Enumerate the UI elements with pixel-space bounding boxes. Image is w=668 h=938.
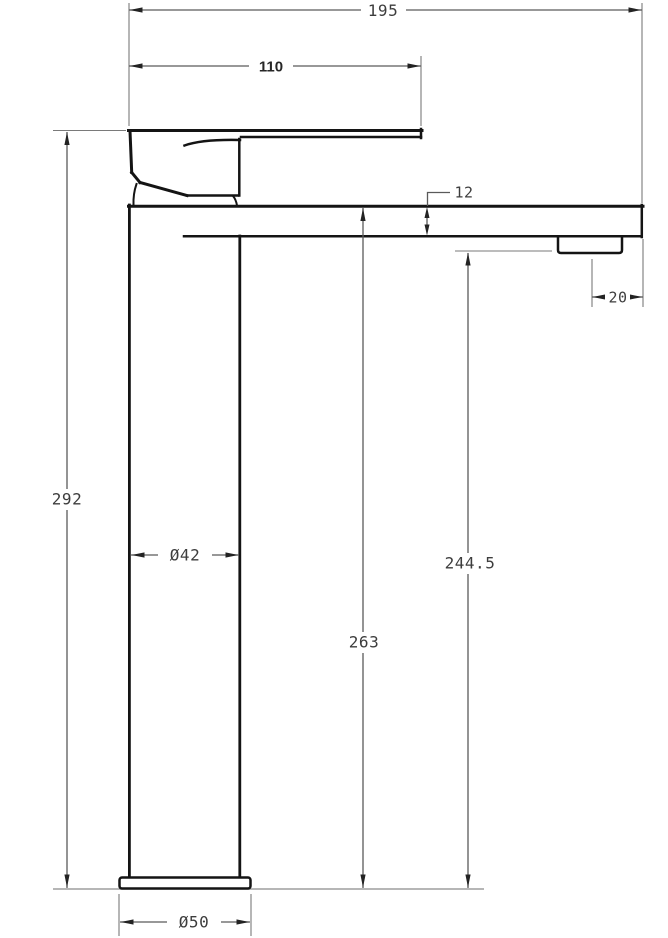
faucet-outline xyxy=(120,129,644,889)
arrowhead-left xyxy=(121,919,134,924)
arrowhead-right xyxy=(237,919,250,924)
drawing-sheet: 195 110 12 20 292 xyxy=(0,0,668,938)
arrowhead-down xyxy=(360,875,365,888)
dim-label-110: 110 xyxy=(259,58,283,75)
dim-label-244-5: 244.5 xyxy=(445,554,496,573)
dimension-handle-lever-length: 110 xyxy=(129,56,421,126)
dimension-spout-thickness: 12 xyxy=(425,184,474,236)
dim-label-20: 20 xyxy=(608,289,627,307)
dimension-overall-projection: 195 xyxy=(129,1,642,203)
neck-right-arc xyxy=(233,196,237,206)
technical-drawing-canvas: 195 110 12 20 292 xyxy=(0,0,668,938)
dimension-body-diameter: Ø42 xyxy=(131,545,239,566)
arrowhead-left xyxy=(132,552,145,557)
base-flange xyxy=(120,878,251,889)
dimension-outlet-to-spout-end: 20 xyxy=(592,239,643,307)
arrowhead-down xyxy=(425,225,430,236)
dimension-outlet-height: 244.5 xyxy=(443,251,552,888)
arrowhead-right xyxy=(629,7,642,12)
aerator-outlet xyxy=(558,237,622,254)
handle-body-top-curve xyxy=(185,140,241,146)
handle-body-left-edge xyxy=(130,131,132,173)
dim-label-292: 292 xyxy=(52,490,82,509)
arrowhead-right xyxy=(630,294,643,299)
arrowhead-left xyxy=(130,63,143,68)
dim-label-12: 12 xyxy=(454,184,473,202)
handle-body-left-jog xyxy=(132,173,140,183)
arrowhead-up xyxy=(425,207,430,218)
neck-left-arc xyxy=(133,184,136,206)
arrowhead-up xyxy=(360,208,365,221)
dim-label-195: 195 xyxy=(368,1,398,20)
dim-label-dia50: Ø50 xyxy=(179,913,209,932)
arrowhead-down xyxy=(465,875,470,888)
handle-body-bottom-diagonal xyxy=(140,183,187,196)
arrowhead-left xyxy=(593,294,606,299)
dimension-base-diameter: Ø50 xyxy=(119,894,251,936)
dimension-spout-top-height: 263 xyxy=(346,208,381,888)
arrowhead-right xyxy=(408,63,421,68)
dimension-overall-height: 292 xyxy=(50,131,126,889)
leader-line xyxy=(428,193,451,207)
arrowhead-down xyxy=(64,875,69,888)
arrowhead-up xyxy=(465,253,470,266)
arrowhead-right xyxy=(226,552,239,557)
arrowhead-up xyxy=(64,132,69,145)
dim-label-263: 263 xyxy=(349,633,379,652)
arrowhead-left xyxy=(130,7,143,12)
dim-label-dia42: Ø42 xyxy=(170,546,200,565)
